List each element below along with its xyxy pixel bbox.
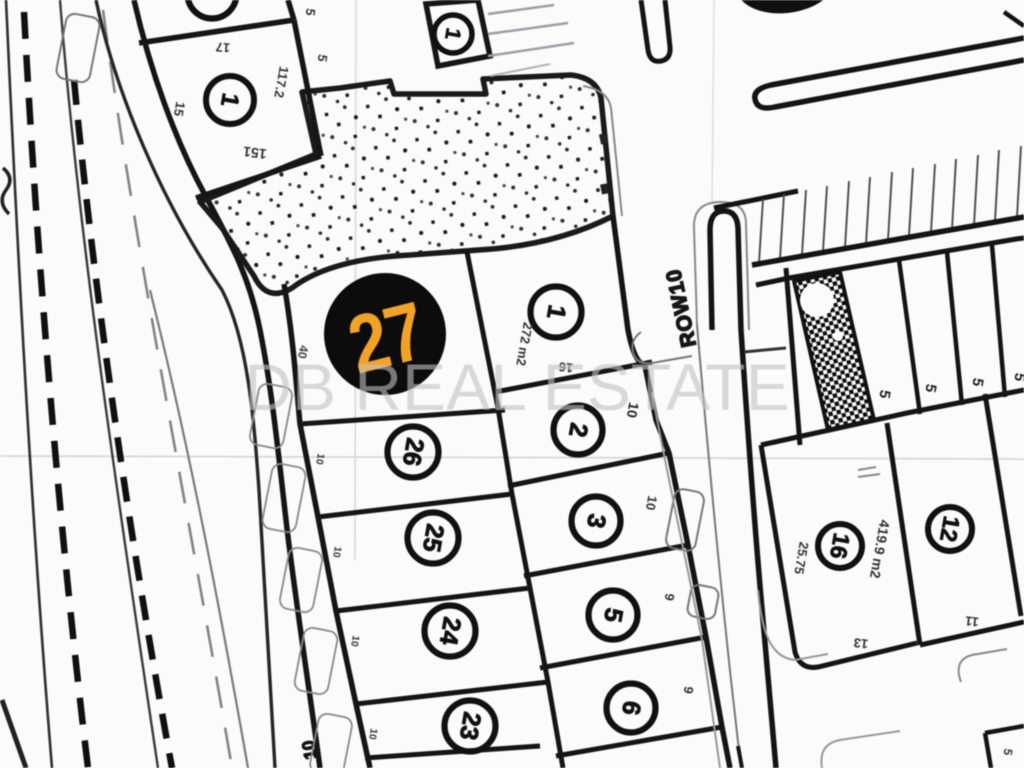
svg-text:13: 13 [853, 635, 869, 652]
svg-text:23: 23 [454, 710, 486, 742]
svg-text:16: 16 [825, 531, 855, 561]
svg-text:17: 17 [215, 39, 231, 55]
svg-text:24: 24 [434, 615, 466, 647]
svg-text:25: 25 [417, 522, 449, 554]
svg-text:DB REAL ESTATE: DB REAL ESTATE [244, 350, 789, 424]
svg-text:26: 26 [397, 436, 429, 468]
svg-text:151: 151 [242, 144, 267, 163]
svg-text:10: 10 [298, 739, 320, 761]
svg-text:15: 15 [171, 101, 188, 118]
svg-text:10: 10 [643, 495, 660, 512]
svg-text:11: 11 [964, 613, 979, 630]
svg-text:12: 12 [935, 514, 965, 544]
